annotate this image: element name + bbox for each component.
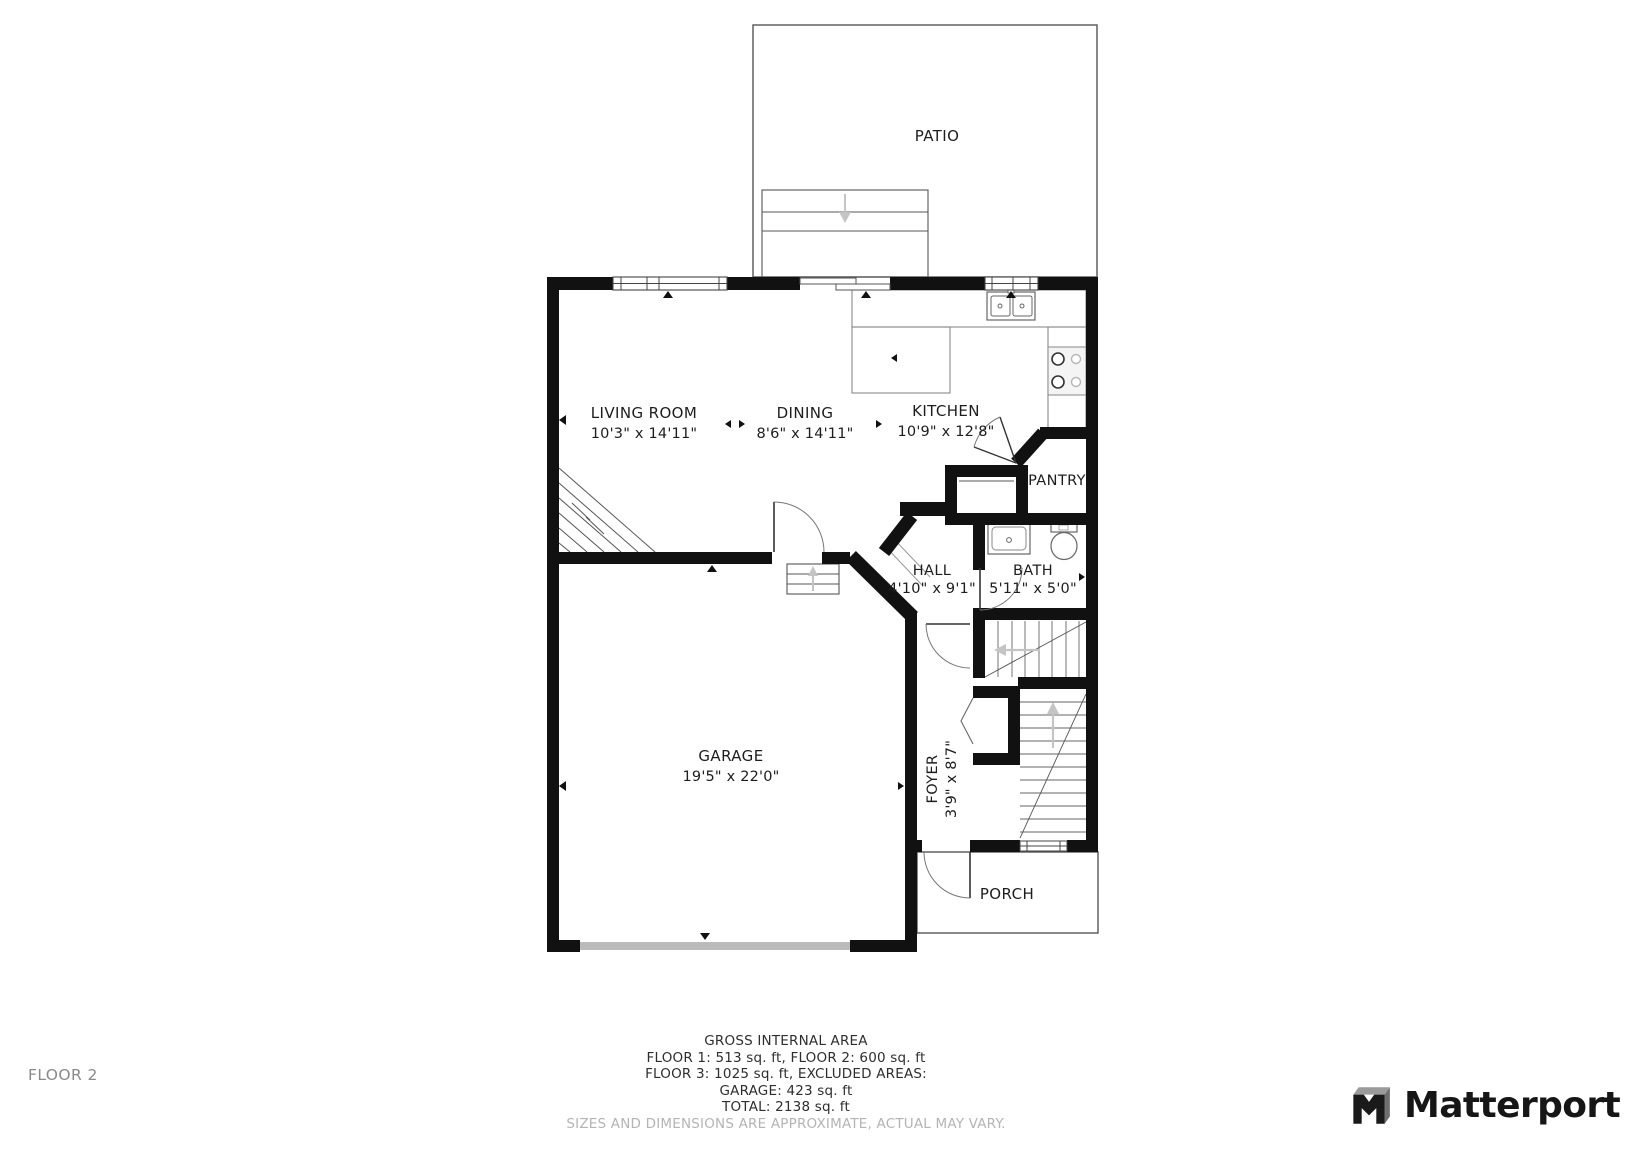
room-label-kitchen: KITCHEN 10'9" x 12'8" (897, 402, 994, 440)
svg-text:PATIO: PATIO (915, 127, 960, 145)
area-summary-line1: FLOOR 1: 513 sq. ft, FLOOR 2: 600 sq. ft (500, 1050, 1072, 1067)
svg-text:PANTRY: PANTRY (1028, 473, 1086, 489)
svg-text:DINING: DINING (777, 404, 834, 422)
floorplan-drawing: PATIO LIVING ROOM 10'3" x 14'11" DINING … (0, 0, 1647, 1164)
door-dining-garage (774, 502, 824, 552)
floorplan-page: PATIO LIVING ROOM 10'3" x 14'11" DINING … (0, 0, 1647, 1164)
area-summary-line3: GARAGE: 423 sq. ft (500, 1083, 1072, 1100)
window-living-room (613, 277, 727, 290)
svg-text:10'9" x 12'8": 10'9" x 12'8" (897, 424, 994, 440)
door-front-porch (924, 852, 970, 898)
disclaimer-text: SIZES AND DIMENSIONS ARE APPROXIMATE, AC… (500, 1116, 1072, 1133)
svg-text:LIVING ROOM: LIVING ROOM (591, 404, 697, 422)
stair-hatch (559, 468, 655, 552)
room-label-dining: DINING 8'6" x 14'11" (756, 404, 853, 442)
matterport-logo: Matterport (1345, 1082, 1620, 1128)
svg-text:19'5" x 22'0": 19'5" x 22'0" (682, 769, 779, 785)
area-summary-line2: FLOOR 3: 1025 sq. ft, EXCLUDED AREAS: (500, 1066, 1072, 1083)
svg-text:GARAGE: GARAGE (698, 747, 763, 765)
matterport-wordmark: Matterport (1404, 1085, 1620, 1126)
door-foyer (926, 624, 970, 668)
svg-text:4'10" x 9'1": 4'10" x 9'1" (888, 581, 976, 597)
window-kitchen (985, 277, 1038, 290)
walls (547, 277, 1098, 952)
room-label-garage: GARAGE 19'5" x 22'0" (682, 747, 779, 785)
svg-text:10'3" x 14'11": 10'3" x 14'11" (591, 426, 698, 442)
window-porch (1020, 841, 1067, 851)
svg-text:KITCHEN: KITCHEN (912, 402, 980, 420)
svg-text:BATH: BATH (1013, 563, 1053, 579)
svg-text:8'6" x 14'11": 8'6" x 14'11" (756, 426, 853, 442)
garage-door (580, 942, 850, 950)
stove-icon (1048, 347, 1086, 395)
patio-steps-arrow-icon (839, 194, 851, 223)
svg-text:FOYER: FOYER (925, 754, 941, 803)
area-summary-title: GROSS INTERNAL AREA (500, 1033, 1072, 1050)
matterport-m-icon (1345, 1082, 1393, 1128)
area-summary-line4: TOTAL: 2138 sq. ft (500, 1099, 1072, 1116)
room-label-pantry: PANTRY (1028, 473, 1086, 489)
svg-text:PORCH: PORCH (980, 885, 1034, 903)
svg-text:HALL: HALL (913, 563, 952, 579)
room-label-living-room: LIVING ROOM 10'3" x 14'11" (591, 404, 698, 442)
svg-text:5'11" x 5'0": 5'11" x 5'0" (989, 581, 1077, 597)
floor-label: FLOOR 2 (28, 1066, 98, 1084)
closet-bifold-door (961, 698, 973, 744)
sliding-door (800, 278, 890, 290)
room-label-hall: HALL 4'10" x 9'1" (888, 563, 976, 597)
toilet-icon (1051, 523, 1077, 560)
stairs-upper-arrow-icon (994, 644, 1040, 656)
room-label-porch: PORCH (980, 885, 1034, 903)
svg-text:3'9" x 8'7": 3'9" x 8'7" (944, 740, 960, 818)
patio-outline (753, 25, 1097, 277)
room-label-patio: PATIO (915, 127, 960, 145)
room-label-bath: BATH 5'11" x 5'0" (989, 563, 1077, 597)
area-summary: GROSS INTERNAL AREA FLOOR 1: 513 sq. ft,… (500, 1033, 1072, 1132)
room-label-foyer: FOYER 3'9" x 8'7" (925, 740, 960, 818)
